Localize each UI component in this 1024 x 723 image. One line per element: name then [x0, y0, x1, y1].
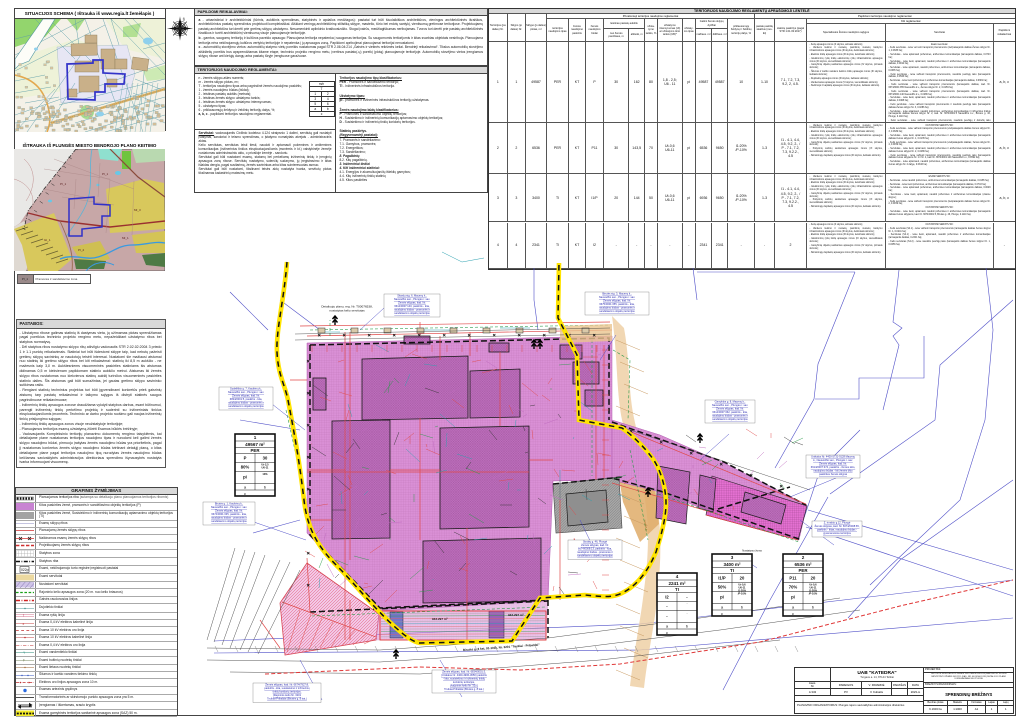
- svg-text:Skardų stg. 6, Macenų k.,: Skardų stg. 6, Macenų k.,: [397, 294, 427, 298]
- svg-text:gyvenamosios teritorijos: gyvenamosios teritorijos: [823, 531, 852, 535]
- svg-text:2: 2: [802, 555, 805, 560]
- svg-text:GI_1: GI_1: [44, 238, 51, 242]
- svg-text:sandėliavimo objektų teritorij: sandėliavimo objektų teritorijos: [712, 417, 748, 421]
- svg-text:943-297 m²: 943-297 m²: [432, 617, 448, 621]
- svg-text:80%: 80%: [241, 465, 250, 470]
- svg-text:PI_1: PI_1: [60, 182, 67, 186]
- svg-text:-: -: [687, 612, 688, 615]
- svg-text:50%: 50%: [718, 585, 727, 590]
- svg-text:P: P: [244, 456, 247, 461]
- svg-text:Nausodžio sen., Plungės r. sav: Nausodžio sen., Plungės r. sav.: [228, 390, 264, 394]
- svg-text:sandėliavimo objektų teritorij: sandėliavimo objektų teritorijos: [577, 554, 613, 558]
- svg-text:(Rajoninis kelio Nr. 3201: (Rajoninis kelio Nr. 3201: [450, 684, 479, 688]
- svg-text:Nustatymo žoma: Nustatymo žoma: [742, 549, 762, 553]
- svg-text:pi: pi: [243, 475, 247, 480]
- svg-text:49567 m²: 49567 m²: [245, 442, 265, 447]
- svg-text:naudojimo būdas - pramonės ir: naudojimo būdas - pramonės ir: [577, 550, 613, 554]
- svg-text:TI: TI: [675, 587, 679, 592]
- svg-text:sandėliavimo objektų teritorij: sandėliavimo objektų teritorijos: [394, 311, 430, 315]
- svg-text:Š: Š: [183, 17, 186, 22]
- svg-text:tinklų koridorių teritorijos,: tinklų koridorių teritorijos,: [273, 690, 302, 694]
- svg-text:Strukių g. 46, Plungė: Strukių g. 46, Plungė: [583, 540, 608, 544]
- svg-text:-: -: [687, 603, 688, 606]
- svg-text:Nausodžio sen., Plungės r. sav: Nausodžio sen., Plungės r. sav.: [599, 295, 635, 299]
- svg-text:Nausodžio sen., Plungės r. sav: Nausodžio sen., Plungės r. sav.: [211, 505, 247, 509]
- svg-text:PI_2: PI_2: [78, 248, 85, 252]
- svg-text:20: 20: [811, 576, 816, 581]
- svg-text:U6-11: U6-11: [262, 466, 269, 470]
- svg-text:naudojimo būdas - pramonės ir: naudojimo būdas - pramonės ir: [228, 401, 264, 405]
- svg-text:koridorių teritorijos,: koridorių teritorijos,: [453, 680, 475, 684]
- svg-text:Birutės g. 1, Kaušėnų k.,: Birutės g. 1, Kaušėnų k.,: [215, 502, 244, 506]
- svg-text:PI_1: PI_1: [102, 172, 109, 176]
- svg-text:c: c: [666, 630, 668, 635]
- svg-text:Sodeliškio g. 7, Kaušėnų k.,: Sodeliškio g. 7, Kaušėnų k.,: [230, 387, 262, 391]
- svg-text:6614/0007:362, paskirtis - kit: 6614/0007:362, paskirtis - kita,: [712, 410, 748, 414]
- svg-text:nustatytas kelio servitutas: nustatytas kelio servitutas: [329, 309, 365, 313]
- svg-text:2241 m²: 2241 m²: [668, 581, 686, 586]
- svg-text:naudojimo būdas - kiti žemės ū: naudojimo būdas - kiti žemės ūkio: [813, 469, 853, 473]
- svg-text:20: 20: [740, 576, 745, 581]
- svg-text:/P-10%: /P-10%: [809, 591, 818, 595]
- svg-text:(Unikalus Nr. 4400-4906-3650): (Unikalus Nr. 4400-4906-3650) paskirtis: [441, 673, 487, 677]
- svg-text:naudojimo būdas - pramonės ir: naudojimo būdas - pramonės ir: [712, 414, 748, 418]
- svg-text:Nausodžio sen., Plungės r. sav: Nausodžio sen., Plungės r. sav.: [712, 403, 748, 407]
- svg-text:4: 4: [676, 574, 679, 579]
- svg-text:6834/0001:5, paskirtis - kita,: 6834/0001:5, paskirtis - kita,: [230, 397, 263, 401]
- svg-text:PER: PER: [250, 448, 260, 453]
- svg-text:paskirties žemės sklypai: paskirties žemės sklypai: [819, 472, 847, 476]
- svg-text:022p: 022p: [21, 568, 29, 572]
- svg-text:70%: 70%: [789, 585, 798, 590]
- svg-text:Z. rimskio g.12, Plungė: Z. rimskio g.12, Plungė: [824, 521, 851, 525]
- svg-text:c: c: [244, 491, 246, 496]
- svg-text:naudojimo būdas - pramonės ir: naudojimo būdas - pramonės ir: [211, 516, 247, 520]
- svg-text:6674/0008:13, paskirtis - kita: 6674/0008:13, paskirtis - kita,: [578, 547, 612, 551]
- svg-text:MI_3: MI_3: [134, 208, 141, 212]
- svg-text:TI: TI: [730, 568, 734, 573]
- svg-text:6675/0001:355, paskirtis - kit: 6675/0001:355, paskirtis - kita,: [599, 302, 635, 306]
- svg-text:sandėliavimo objektų teritorij: sandėliavimo objektų teritorijos: [211, 519, 247, 523]
- svg-text:sandėliavimo objektų teritorij: sandėliavimo objektų teritorijos: [599, 309, 635, 313]
- svg-text:PER: PER: [798, 568, 808, 573]
- svg-text:1: 1: [254, 435, 257, 440]
- svg-text:Unikalus Nr. 4400-5731-9128 Ma: Unikalus Nr. 4400-5731-9128 Macenų: [811, 455, 855, 459]
- svg-text:Gamyklos g. 8, Macenų k.,: Gamyklos g. 8, Macenų k.,: [715, 400, 746, 404]
- svg-text:6614/0007:140, paskirtis - kit: 6614/0007:140, paskirtis - kita,: [394, 304, 430, 308]
- svg-text:I1/P: I1/P: [718, 576, 726, 581]
- svg-text:943-297 m²: 943-297 m²: [508, 613, 524, 617]
- svg-text:naudojimo būdas - pramonės ir: naudojimo būdas - pramonės ir: [599, 306, 635, 310]
- svg-text:Žemės sklypas, kad. Nr. 6674/7: Žemės sklypas, kad. Nr. 6674/7927:8,: [265, 682, 309, 687]
- svg-text:sandėliavimo objektų teritorij: sandėliavimo objektų teritorijos: [228, 404, 264, 408]
- svg-text:- kita, susisiekimo ir inžiner: - kita, susisiekimo ir inžinerinių tinkl…: [443, 677, 485, 681]
- svg-text:Birutės stg. 3, Macenų k.,: Birutės stg. 3, Macenų k.,: [602, 292, 632, 296]
- svg-text:6614/0007:374, paskirtis - žem: 6614/0007:374, paskirtis - žemės ūkio,: [811, 465, 856, 469]
- svg-text:x: x: [23, 621, 25, 625]
- svg-text:Nausodžio sen., Plungės r. sav: Nausodžio sen., Plungės r. sav.: [394, 297, 430, 301]
- svg-text:paskirtis - kitas, naudojimo b: paskirtis - kitas, naudojimo būdas -: [817, 528, 857, 532]
- svg-text:MI_1: MI_1: [122, 236, 129, 240]
- svg-text:t: t: [23, 614, 24, 618]
- svg-text:Truikiai-Pribaldai (Birutės g.: Truikiai-Pribaldai (Birutės g. 8 kat.): [444, 687, 484, 691]
- svg-text:pi: pi: [791, 595, 795, 600]
- svg-text:naudojimo būdas - pramonės ir: naudojimo būdas - pramonės ir: [394, 308, 430, 312]
- svg-text:3: 3: [731, 555, 734, 560]
- svg-text:F: F: [23, 659, 25, 663]
- svg-text:pi: pi: [720, 595, 724, 600]
- svg-text:paskirtis - kita, susisiekimo: paskirtis - kita, susisiekimo ir inžiner…: [264, 686, 310, 690]
- svg-text:3400 m²: 3400 m²: [723, 562, 741, 567]
- svg-text:c: c: [721, 611, 723, 616]
- svg-text:6536 m²: 6536 m²: [794, 562, 812, 567]
- svg-text:6674/0001:335, paskirtis - kit: 6674/0001:335, paskirtis - kita,: [211, 512, 247, 516]
- svg-text:/P-10%: /P-10%: [738, 591, 747, 595]
- svg-text:Truikiai-Pribaldai (Birutės g.: Truikiai-Pribaldai (Birutės g. 8 kat.): [267, 697, 307, 701]
- svg-text:30: 30: [263, 456, 268, 461]
- svg-text:10%: 10%: [262, 472, 268, 476]
- svg-text:c: c: [792, 611, 794, 616]
- svg-text:(Rajoninis kelio Nr. 3201: (Rajoninis kelio Nr. 3201: [273, 693, 302, 697]
- svg-text:P11: P11: [789, 576, 797, 581]
- svg-text:k., Nausodžio sen., Plungės r.: k., Nausodžio sen., Plungės r. sav.: [813, 458, 853, 462]
